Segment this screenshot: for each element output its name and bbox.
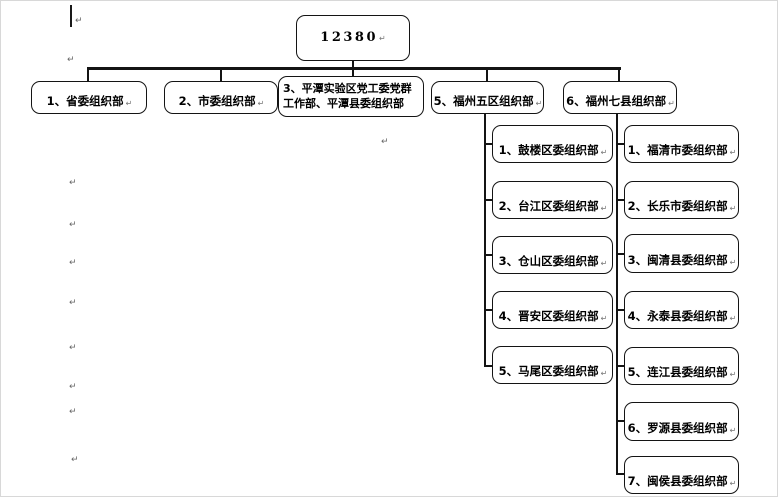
paragraph-mark: ↵	[379, 34, 386, 43]
paragraph-mark: ↵	[69, 299, 77, 308]
connector-district-stub-1	[484, 143, 492, 145]
connector-county-stub-1	[616, 143, 624, 145]
org-box-label: 6、罗源县委组织部	[627, 422, 729, 440]
paragraph-mark: ↵	[730, 204, 737, 218]
paragraph-mark: ↵	[730, 148, 737, 162]
org-box-minqing[interactable]: 3、闽清县委组织部 ↵	[624, 234, 739, 273]
connector-stub-province	[87, 67, 89, 82]
paragraph-mark: ↵	[69, 259, 77, 268]
org-box-label: 2、市委组织部	[178, 95, 257, 113]
connector-stub-seven-counties	[618, 67, 620, 82]
org-box-fuqing[interactable]: 1、福清市委组织部 ↵	[624, 125, 739, 163]
connector-district-stub-2	[484, 199, 492, 201]
paragraph-mark: ↵	[730, 370, 737, 384]
paragraph-mark: ↵	[601, 204, 608, 218]
org-box-cangshan[interactable]: 3、仓山区委组织部 ↵	[492, 236, 613, 274]
org-box-municipal-dept[interactable]: 2、市委组织部 ↵	[164, 81, 278, 114]
connector-county-stub-2	[616, 199, 624, 201]
org-box-yongtai[interactable]: 4、永泰县委组织部 ↵	[624, 291, 739, 329]
org-box-label: 1、福清市委组织部	[627, 144, 729, 162]
org-box-label: 5、马尾区委组织部	[498, 365, 600, 383]
paragraph-mark: ↵	[601, 148, 608, 162]
paragraph-mark: ↵	[75, 17, 83, 26]
org-box-fuzhou-seven-counties[interactable]: 6、福州七县组织部 ↵	[563, 81, 677, 114]
org-box-mawei[interactable]: 5、马尾区委组织部 ↵	[492, 346, 613, 384]
paragraph-mark: ↵	[258, 99, 265, 113]
connector-county-stub-3	[616, 253, 624, 255]
org-box-label: 5、连江县委组织部	[627, 366, 729, 384]
paragraph-mark: ↵	[67, 56, 75, 65]
paragraph-mark: ↵	[381, 138, 389, 147]
connector-stub-city	[220, 67, 222, 82]
paragraph-mark: ↵	[730, 314, 737, 328]
connector-districts-vline	[484, 113, 486, 367]
org-box-gulou[interactable]: 1、鼓楼区委组织部 ↵	[492, 125, 613, 163]
org-box-label: 5、福州五区组织部	[433, 95, 535, 113]
paragraph-mark: ↵	[601, 259, 608, 273]
org-box-label: 1、省委组织部	[46, 95, 125, 113]
paragraph-mark: ↵	[126, 99, 133, 113]
paragraph-mark: ↵	[601, 314, 608, 328]
connector-county-stub-5	[616, 365, 624, 367]
paragraph-mark: ↵	[601, 369, 608, 383]
org-box-label: 2、长乐市委组织部	[627, 200, 729, 218]
paragraph-mark: ↵	[536, 99, 543, 113]
org-box-label: 3、平潭实验区党工委党群工作部、平潭县委组织部	[279, 81, 423, 113]
org-box-root-12380[interactable]: 12380 ↵	[296, 15, 410, 61]
paragraph-mark: ↵	[668, 99, 675, 113]
paragraph-mark: ↵	[69, 408, 77, 417]
org-box-label: 1、鼓楼区委组织部	[498, 144, 600, 162]
word-document-canvas: ↵ ↵ ↵ ↵ ↵ ↵ ↵ ↵ ↵ ↵ ↵ 12380 ↵ 1、省委组织部 ↵ …	[0, 0, 778, 497]
connector-stub-five-districts	[486, 67, 488, 82]
org-box-label: 2、台江区委组织部	[498, 200, 600, 218]
org-box-luoyuan[interactable]: 6、罗源县委组织部 ↵	[624, 402, 739, 441]
text-cursor	[70, 5, 72, 27]
connector-county-stub-6	[616, 420, 624, 422]
connector-district-stub-4	[484, 309, 492, 311]
org-box-changle[interactable]: 2、长乐市委组织部 ↵	[624, 181, 739, 219]
org-box-label: 4、永泰县委组织部	[627, 310, 729, 328]
org-box-label: 3、闽清县委组织部	[627, 254, 729, 272]
org-box-minhou[interactable]: 7、闽侯县委组织部 ↵	[624, 456, 739, 494]
paragraph-mark: ↵	[730, 426, 737, 440]
org-box-taijiang[interactable]: 2、台江区委组织部 ↵	[492, 181, 613, 219]
org-box-jinan[interactable]: 4、晋安区委组织部 ↵	[492, 291, 613, 329]
paragraph-mark: ↵	[730, 258, 737, 272]
connector-county-stub-4	[616, 309, 624, 311]
org-box-fuzhou-five-districts[interactable]: 5、福州五区组织部 ↵	[431, 81, 544, 114]
connector-county-stub-7	[616, 473, 624, 475]
paragraph-mark: ↵	[69, 221, 77, 230]
connector-district-stub-5	[484, 365, 492, 367]
org-box-label: 7、闽侯县委组织部	[627, 475, 729, 493]
paragraph-mark: ↵	[69, 179, 77, 188]
paragraph-mark: ↵	[730, 479, 737, 493]
org-box-label: 12380	[320, 31, 378, 45]
paragraph-mark: ↵	[69, 344, 77, 353]
paragraph-mark: ↵	[69, 383, 77, 392]
org-box-provincial-dept[interactable]: 1、省委组织部 ↵	[31, 81, 147, 114]
paragraph-mark: ↵	[71, 456, 79, 465]
connector-district-stub-3	[484, 254, 492, 256]
org-box-label: 4、晋安区委组织部	[498, 310, 600, 328]
org-box-lianjiang[interactable]: 5、连江县委组织部 ↵	[624, 347, 739, 385]
org-box-label: 6、福州七县组织部	[565, 95, 667, 113]
org-box-pingtan-dept[interactable]: 3、平潭实验区党工委党群工作部、平潭县委组织部	[278, 76, 424, 117]
connector-level2-hline	[87, 67, 621, 70]
org-box-label: 3、仓山区委组织部	[498, 255, 600, 273]
